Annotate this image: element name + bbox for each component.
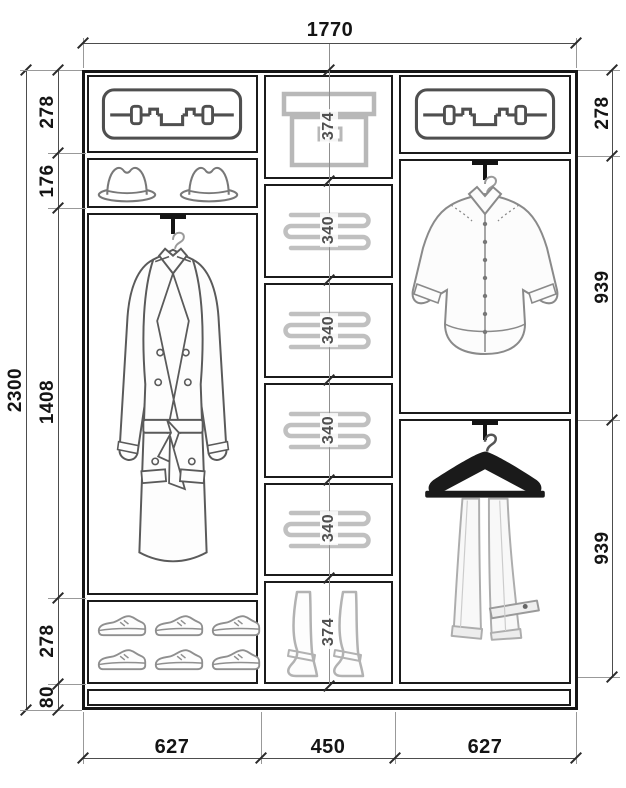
- dim-label-bottom-1: 450: [288, 736, 368, 759]
- shoe-icon: [96, 646, 148, 672]
- dim-label-middle-4: 340: [320, 511, 338, 545]
- dim-label-right-0: 278: [592, 96, 614, 129]
- dim-label-right-1: 939: [592, 270, 614, 303]
- suitcase-icon: [98, 86, 246, 142]
- suitcase-icon: [411, 86, 559, 142]
- shoe-icon: [210, 646, 262, 672]
- trousers-icon: [410, 430, 560, 680]
- dim-label-middle-5: 374: [320, 615, 338, 649]
- extension-line: [48, 208, 86, 209]
- shoe-icon: [153, 646, 205, 672]
- extension-line: [578, 420, 620, 421]
- dim-label-bottom-0: 627: [132, 736, 212, 759]
- shirt-icon: [403, 172, 567, 372]
- extension-line: [578, 677, 620, 678]
- dim-label-left-1: 176: [37, 164, 59, 197]
- dim-label-left-3: 278: [37, 624, 59, 657]
- extension-line: [48, 153, 86, 154]
- dim-label-middle-3: 340: [320, 413, 338, 447]
- dim-label-right-2: 939: [592, 531, 614, 564]
- dim-label-overall-width: 1770: [290, 19, 370, 42]
- extension-line: [20, 710, 82, 711]
- dim-label-overall-height: 2300: [5, 368, 27, 412]
- dim-label-bottom-2: 627: [445, 736, 525, 759]
- dim-label-left-2: 1408: [37, 380, 59, 424]
- wardrobe-diagram: 1770 2300 278 176 1408 278 80 374 340 34…: [0, 0, 626, 788]
- hat-icon: [178, 163, 240, 204]
- extension-line: [578, 70, 620, 71]
- dim-label-middle-2: 340: [320, 313, 338, 347]
- dim-label-middle-0: 374: [320, 109, 338, 143]
- cabinet-plinth: [87, 689, 571, 706]
- shoe-icon: [210, 612, 262, 638]
- dim-label-left-4: 80: [37, 686, 59, 708]
- coat-icon: [97, 226, 249, 590]
- dim-label-middle-1: 340: [320, 213, 338, 247]
- shoe-icon: [153, 612, 205, 638]
- extension-line: [48, 684, 86, 685]
- extension-line: [20, 70, 82, 71]
- hat-icon: [96, 163, 158, 204]
- extension-line: [578, 156, 620, 157]
- dim-label-left-0: 278: [37, 95, 59, 128]
- extension-line: [48, 598, 86, 599]
- shoe-icon: [96, 612, 148, 638]
- dim-line-right: [612, 70, 613, 677]
